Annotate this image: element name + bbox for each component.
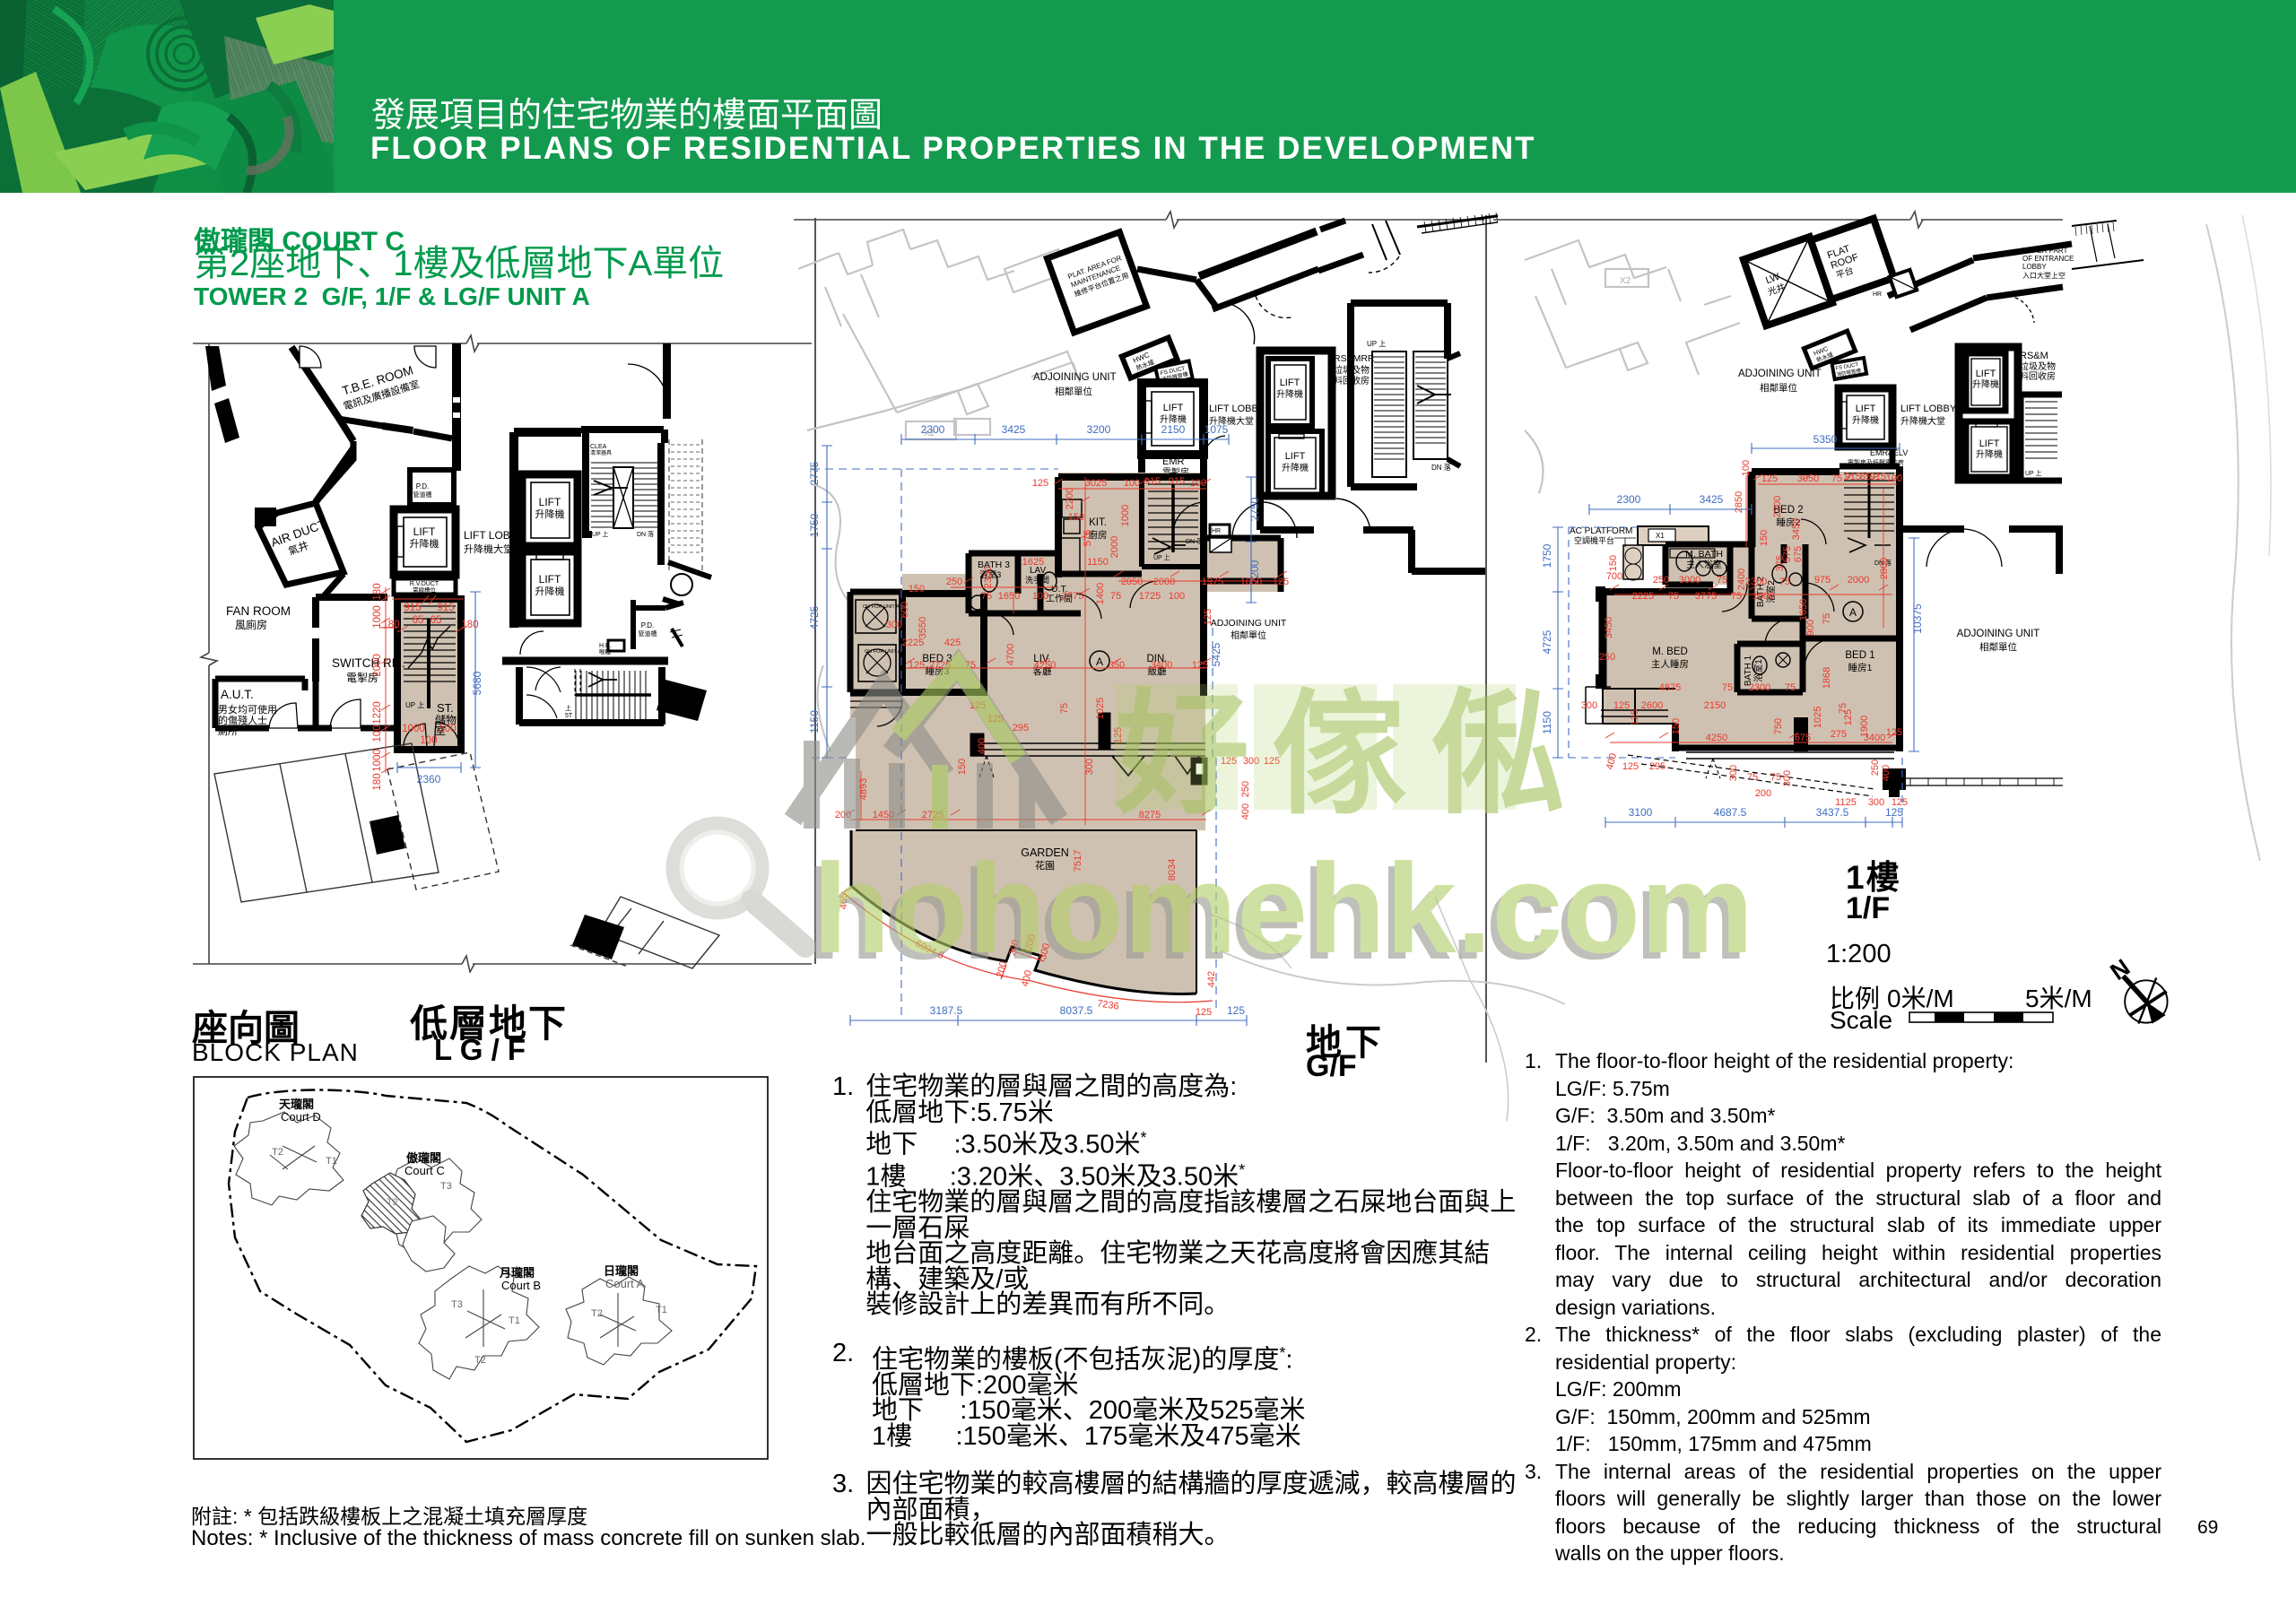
svg-text:180: 180 — [461, 620, 478, 630]
svg-text:LIFT: LIFT — [1979, 438, 2000, 449]
svg-text:900: 900 — [1805, 620, 1816, 636]
svg-text:P.D.: P.D. — [416, 482, 430, 490]
svg-text:500: 500 — [439, 724, 456, 734]
svg-text:垃圾及物: 垃圾及物 — [2020, 360, 2056, 372]
svg-text:T1: T1 — [656, 1305, 667, 1315]
svg-text:100: 100 — [1032, 591, 1048, 602]
svg-text:2000: 2000 — [372, 654, 383, 677]
svg-text:2050: 2050 — [1121, 577, 1143, 587]
svg-text:675: 675 — [1793, 546, 1804, 562]
svg-text:UPPER PART: UPPER PART — [2022, 247, 2067, 255]
svg-text:3050: 3050 — [1797, 473, 1819, 484]
svg-text:天瓏閣: 天瓏閣 — [279, 1098, 314, 1111]
svg-text:75: 75 — [1831, 473, 1842, 484]
svg-text:180: 180 — [372, 773, 383, 790]
svg-text:75: 75 — [1822, 613, 1832, 624]
svg-text:空調機平台: 空調機平台 — [1574, 535, 1614, 545]
svg-text:LIFT: LIFT — [1856, 404, 1876, 414]
svg-text:2850: 2850 — [1734, 491, 1744, 513]
svg-text:UP 上: UP 上 — [1153, 553, 1170, 561]
svg-text:250: 250 — [1870, 759, 1881, 776]
svg-text:A: A — [1849, 606, 1857, 619]
svg-text:LIFT: LIFT — [1280, 378, 1300, 388]
svg-text:1125: 1125 — [1835, 797, 1857, 808]
svg-text:75: 75 — [1785, 682, 1796, 693]
svg-text:5T: 5T — [565, 713, 573, 719]
svg-text:管道槽: 管道槽 — [639, 629, 657, 638]
svg-text:75: 75 — [1731, 591, 1742, 602]
svg-text:的傷殘人士: 的傷殘人士 — [218, 714, 267, 726]
svg-text:125: 125 — [1886, 727, 1902, 738]
svg-text:300: 300 — [1868, 797, 1884, 808]
svg-text:2000: 2000 — [1153, 577, 1175, 587]
svg-text:2200: 2200 — [1065, 488, 1075, 509]
svg-text:料回收房: 料回收房 — [2020, 370, 2056, 382]
svg-text:915: 915 — [1169, 476, 1185, 487]
svg-text:1650: 1650 — [998, 591, 1020, 602]
svg-text:傲瓏閣: 傲瓏閣 — [406, 1151, 441, 1165]
svg-text:升降機: 升降機 — [1282, 462, 1309, 473]
svg-text:100: 100 — [1741, 460, 1752, 476]
svg-text:3187.5: 3187.5 — [930, 1004, 963, 1017]
svg-text:相鄰單位: 相鄰單位 — [1760, 382, 1797, 394]
svg-text:3437.5: 3437.5 — [1816, 806, 1849, 819]
svg-text:75: 75 — [1779, 577, 1790, 587]
svg-text:125: 125 — [1032, 478, 1048, 489]
svg-text:喉轆: 喉轆 — [599, 647, 612, 655]
svg-text:X2: X2 — [1620, 276, 1631, 286]
svg-text:250: 250 — [1653, 575, 1669, 586]
svg-text:125: 125 — [1843, 709, 1854, 725]
svg-text:1220: 1220 — [372, 701, 383, 725]
svg-text:LIFT: LIFT — [1285, 451, 1306, 462]
svg-text:T1: T1 — [509, 1315, 520, 1326]
svg-text:75: 75 — [1668, 591, 1679, 602]
svg-text:2800: 2800 — [1879, 558, 1890, 579]
svg-text:LIFT: LIFT — [539, 496, 561, 508]
svg-text:T2: T2 — [272, 1147, 283, 1158]
svg-text:400: 400 — [1881, 765, 1892, 781]
svg-text:LIFT: LIFT — [413, 525, 436, 538]
svg-text:AC PLATFORM: AC PLATFORM — [1570, 526, 1632, 536]
svg-text:升降機: 升降機 — [535, 585, 565, 597]
svg-text:915: 915 — [1845, 472, 1861, 482]
svg-text:2000: 2000 — [1848, 575, 1869, 586]
svg-text:575: 575 — [1083, 530, 1093, 546]
svg-text:升降機大堂: 升降機大堂 — [1900, 415, 1945, 427]
svg-text:LIFT: LIFT — [1163, 403, 1184, 413]
svg-text:100: 100 — [1190, 478, 1206, 489]
svg-text:HR: HR — [1873, 291, 1882, 298]
svg-text:UP 上: UP 上 — [2025, 469, 2042, 477]
svg-text:1000: 1000 — [402, 724, 425, 734]
svg-text:8037.5: 8037.5 — [1060, 1004, 1093, 1017]
svg-text:100: 100 — [1886, 473, 1902, 484]
svg-text:375: 375 — [1775, 555, 1786, 571]
svg-text:75: 75 — [1717, 575, 1727, 586]
svg-text:915: 915 — [1870, 472, 1886, 482]
svg-text:廁所: 廁所 — [218, 725, 238, 737]
svg-text:150: 150 — [1068, 512, 1084, 523]
svg-text:KIT.: KIT. — [1089, 517, 1107, 528]
svg-text:T2: T2 — [474, 1355, 486, 1366]
svg-text:FAN ROOM: FAN ROOM — [226, 604, 291, 618]
svg-text:3450: 3450 — [1604, 617, 1614, 638]
svg-text:好傢俬: 好傢俬 — [1114, 679, 1588, 829]
svg-text:915: 915 — [437, 603, 454, 613]
svg-text:1075: 1075 — [1205, 423, 1229, 436]
svg-text:LIFT LOBBY: LIFT LOBBY — [1900, 404, 1957, 414]
svg-text:日瓏閣: 日瓏閣 — [604, 1264, 639, 1278]
svg-text:相鄰單位: 相鄰單位 — [1979, 641, 2017, 653]
svg-text:ADJOINING UNIT: ADJOINING UNIT — [1211, 618, 1287, 629]
svg-text:EMR: EMR — [1162, 456, 1185, 467]
svg-text:入口大堂上空: 入口大堂上空 — [2022, 271, 2066, 280]
svg-text:675: 675 — [1795, 733, 1811, 743]
svg-text:100: 100 — [420, 735, 437, 746]
svg-text:1600: 1600 — [1752, 591, 1774, 602]
svg-text:1650: 1650 — [1798, 599, 1809, 621]
svg-text:125: 125 — [1761, 473, 1778, 484]
svg-text:RS&M: RS&M — [2020, 351, 2048, 361]
svg-text:2200: 2200 — [1772, 496, 1783, 517]
svg-text:Court C: Court C — [404, 1164, 445, 1177]
svg-text:T2: T2 — [591, 1308, 603, 1319]
svg-text:125: 125 — [1892, 797, 1908, 808]
svg-text:相鄰單位: 相鄰單位 — [1231, 629, 1266, 641]
svg-text:洗手間: 洗手間 — [1025, 575, 1049, 585]
svg-text:1975: 1975 — [1202, 577, 1223, 587]
svg-text:300: 300 — [886, 620, 902, 630]
svg-text:7236: 7236 — [1096, 998, 1119, 1011]
svg-text:LIFT: LIFT — [539, 573, 561, 586]
svg-text:915: 915 — [1144, 476, 1161, 487]
svg-text:100: 100 — [1124, 478, 1140, 489]
svg-text:UP 上: UP 上 — [405, 701, 424, 709]
svg-text:2150: 2150 — [1161, 423, 1186, 436]
svg-text:2300: 2300 — [983, 567, 994, 588]
svg-text:3550: 3550 — [918, 617, 928, 638]
svg-text:升降機: 升降機 — [1276, 388, 1303, 400]
svg-text:1625: 1625 — [1022, 557, 1044, 568]
svg-text:3025: 3025 — [1085, 478, 1107, 489]
svg-text:75: 75 — [1110, 591, 1121, 602]
svg-text:升降機: 升降機 — [535, 508, 565, 520]
svg-text:UP 上: UP 上 — [592, 530, 609, 538]
svg-text:10375: 10375 — [1911, 603, 1924, 634]
svg-text:2225: 2225 — [1632, 591, 1654, 602]
svg-text:275: 275 — [1831, 729, 1847, 740]
svg-text:HR: HR — [1212, 528, 1221, 534]
svg-text:2300: 2300 — [921, 423, 945, 436]
svg-text:ADJOINING UNIT: ADJOINING UNIT — [1738, 369, 1822, 379]
svg-text:125: 125 — [1196, 1007, 1212, 1018]
svg-text:hohomehk.com: hohomehk.com — [813, 838, 1753, 980]
svg-text:LIFT: LIFT — [1976, 369, 1996, 379]
svg-text:2775: 2775 — [1062, 591, 1083, 602]
svg-text:Court B: Court B — [501, 1279, 541, 1292]
svg-text:4725: 4725 — [808, 605, 821, 629]
svg-text:65: 65 — [430, 615, 442, 626]
svg-text:升降機: 升降機 — [1976, 448, 2003, 460]
svg-text:150: 150 — [909, 584, 925, 595]
svg-text:X1: X1 — [1656, 532, 1665, 540]
svg-text:SWITCH RM.: SWITCH RM. — [332, 656, 405, 670]
svg-text:750: 750 — [1773, 718, 1784, 734]
svg-text:3775: 3775 — [1695, 591, 1717, 602]
svg-text:700: 700 — [1606, 571, 1622, 582]
svg-text:1000: 1000 — [1120, 505, 1131, 526]
svg-text:電線槽位: 電線槽位 — [413, 586, 437, 594]
svg-text:清潔器具: 清潔器具 — [590, 449, 612, 456]
svg-text:EMR&ELV: EMR&ELV — [1870, 448, 1908, 457]
svg-text:T2: T2 — [387, 1197, 398, 1208]
svg-text:OU FOR UNIT A: OU FOR UNIT A — [863, 604, 900, 610]
svg-text:H.R.: H.R. — [599, 643, 612, 649]
svg-text:125: 125 — [1885, 806, 1903, 819]
svg-text:DN 落: DN 落 — [637, 530, 654, 538]
svg-text:Court D: Court D — [281, 1110, 321, 1124]
svg-text:T3: T3 — [440, 1181, 452, 1192]
svg-text:LOBBY: LOBBY — [2022, 263, 2047, 271]
svg-text:1750: 1750 — [808, 513, 821, 537]
svg-text:300: 300 — [1782, 770, 1793, 786]
svg-text:65: 65 — [413, 615, 424, 626]
svg-text:上: 上 — [565, 704, 571, 712]
svg-text:600: 600 — [900, 602, 910, 618]
svg-text:升降機: 升降機 — [1852, 414, 1879, 426]
svg-text:DN 落: DN 落 — [1186, 537, 1203, 545]
svg-text:2300: 2300 — [1745, 577, 1767, 587]
svg-text:3425: 3425 — [1002, 423, 1026, 436]
svg-text:ADJOINING UNIT: ADJOINING UNIT — [1957, 629, 2040, 639]
svg-text:BED 1: BED 1 — [1845, 650, 1874, 661]
svg-text:1000: 1000 — [372, 605, 383, 629]
svg-text:CLEA: CLEA — [590, 444, 607, 450]
svg-text:3425: 3425 — [1700, 493, 1724, 506]
svg-text:2750: 2750 — [1248, 497, 1261, 521]
svg-text:915: 915 — [404, 603, 421, 613]
svg-text:1868: 1868 — [1822, 667, 1832, 689]
svg-text:5680: 5680 — [471, 671, 483, 695]
svg-text:3200: 3200 — [1087, 423, 1111, 436]
svg-text:5350: 5350 — [1813, 433, 1838, 446]
svg-text:2300: 2300 — [1617, 493, 1641, 506]
svg-text:1150: 1150 — [1087, 557, 1109, 568]
svg-text:1400: 1400 — [1095, 583, 1106, 604]
svg-text:150: 150 — [1759, 530, 1770, 546]
svg-text:1025: 1025 — [1813, 707, 1823, 728]
svg-text:250: 250 — [946, 577, 962, 587]
svg-text:180: 180 — [372, 583, 383, 600]
svg-text:125: 125 — [1203, 609, 1213, 625]
svg-text:100: 100 — [1169, 591, 1185, 602]
svg-text:DN 落: DN 落 — [1431, 463, 1451, 472]
svg-text:75: 75 — [981, 591, 992, 602]
svg-text:睡房1: 睡房1 — [1848, 662, 1873, 673]
svg-text:主人浴室: 主人浴室 — [1686, 559, 1722, 570]
svg-text:100: 100 — [372, 725, 383, 742]
svg-text:125: 125 — [1273, 577, 1289, 587]
svg-text:75: 75 — [1770, 772, 1781, 783]
svg-text:ADJOINING UNIT: ADJOINING UNIT — [1033, 372, 1117, 383]
svg-text:相鄰單位: 相鄰單位 — [1055, 386, 1092, 397]
svg-text:T3: T3 — [451, 1299, 463, 1310]
svg-text:3000: 3000 — [1679, 575, 1700, 586]
svg-text:LIFT LOBBY: LIFT LOBBY — [464, 529, 525, 542]
svg-text:男女均可使用: 男女均可使用 — [218, 703, 277, 716]
svg-text:ST.: ST. — [437, 701, 454, 715]
svg-text:1050: 1050 — [1240, 577, 1262, 587]
svg-text:2000: 2000 — [1109, 536, 1120, 558]
svg-text:M. BATH: M. BATH — [1685, 549, 1723, 560]
svg-text:3400: 3400 — [1864, 733, 1885, 743]
svg-text:1000: 1000 — [372, 749, 383, 772]
svg-text:升降機大堂: 升降機大堂 — [464, 542, 513, 555]
svg-text:150: 150 — [1608, 555, 1619, 571]
svg-text:1750: 1750 — [1541, 543, 1553, 568]
svg-text:風廁房: 風廁房 — [235, 618, 267, 631]
svg-text:2775: 2775 — [808, 461, 821, 485]
svg-text:1725: 1725 — [1139, 591, 1161, 602]
svg-text:P.D.: P.D. — [641, 621, 655, 629]
svg-text:R.V.DUCT: R.V.DUCT — [410, 581, 439, 587]
svg-text:3450: 3450 — [1791, 518, 1802, 540]
svg-text:975: 975 — [1814, 575, 1831, 586]
svg-text:T1: T1 — [326, 1156, 337, 1167]
svg-text:管道槽: 管道槽 — [413, 490, 432, 499]
svg-text:2360: 2360 — [417, 773, 441, 785]
svg-text:升降機: 升降機 — [410, 537, 439, 550]
svg-text:月瓏閣: 月瓏閣 — [499, 1266, 535, 1280]
svg-text:180: 180 — [382, 620, 399, 630]
svg-text:A.U.T.: A.U.T. — [221, 688, 254, 701]
svg-text:UP 上: UP 上 — [1367, 340, 1386, 348]
svg-text:Court A: Court A — [605, 1277, 645, 1290]
svg-text:升降機: 升降機 — [1972, 378, 1999, 390]
svg-text:OF ENTRANCE: OF ENTRANCE — [2022, 255, 2074, 263]
